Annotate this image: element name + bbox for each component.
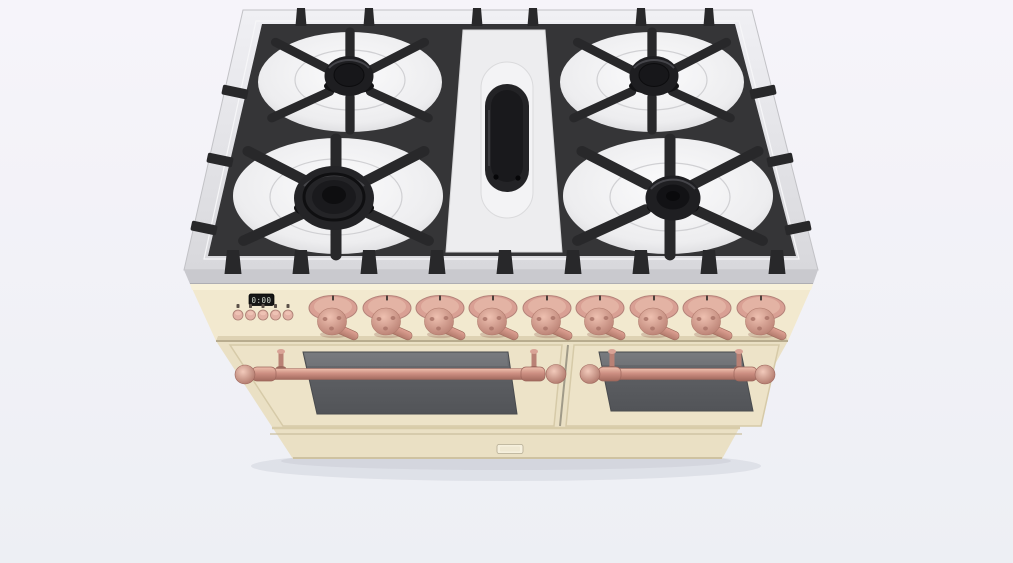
handle-finial-right xyxy=(755,365,775,384)
control-panel: 0:00 xyxy=(190,284,813,341)
panel-top-highlight xyxy=(190,284,813,290)
product-render-canvas: 0:00 xyxy=(0,0,1013,563)
handle-finial-left xyxy=(580,365,600,384)
oven-window-right-reflection xyxy=(600,353,742,365)
oval-burner-center xyxy=(485,84,529,192)
handle-finial-left xyxy=(235,365,255,384)
burner-cap-front-right xyxy=(646,176,701,221)
oven-door-right xyxy=(566,345,779,426)
handle-finial-right xyxy=(546,365,566,384)
display-value: 0:00 xyxy=(251,296,271,305)
cooktop xyxy=(184,8,818,284)
brand-badge xyxy=(497,445,523,454)
oven-body xyxy=(216,341,788,459)
oven-window-left-reflection xyxy=(305,353,508,366)
clock-display: 0:00 xyxy=(249,294,274,306)
control-knobs xyxy=(309,296,787,342)
wok-burner-front-left xyxy=(294,166,374,230)
